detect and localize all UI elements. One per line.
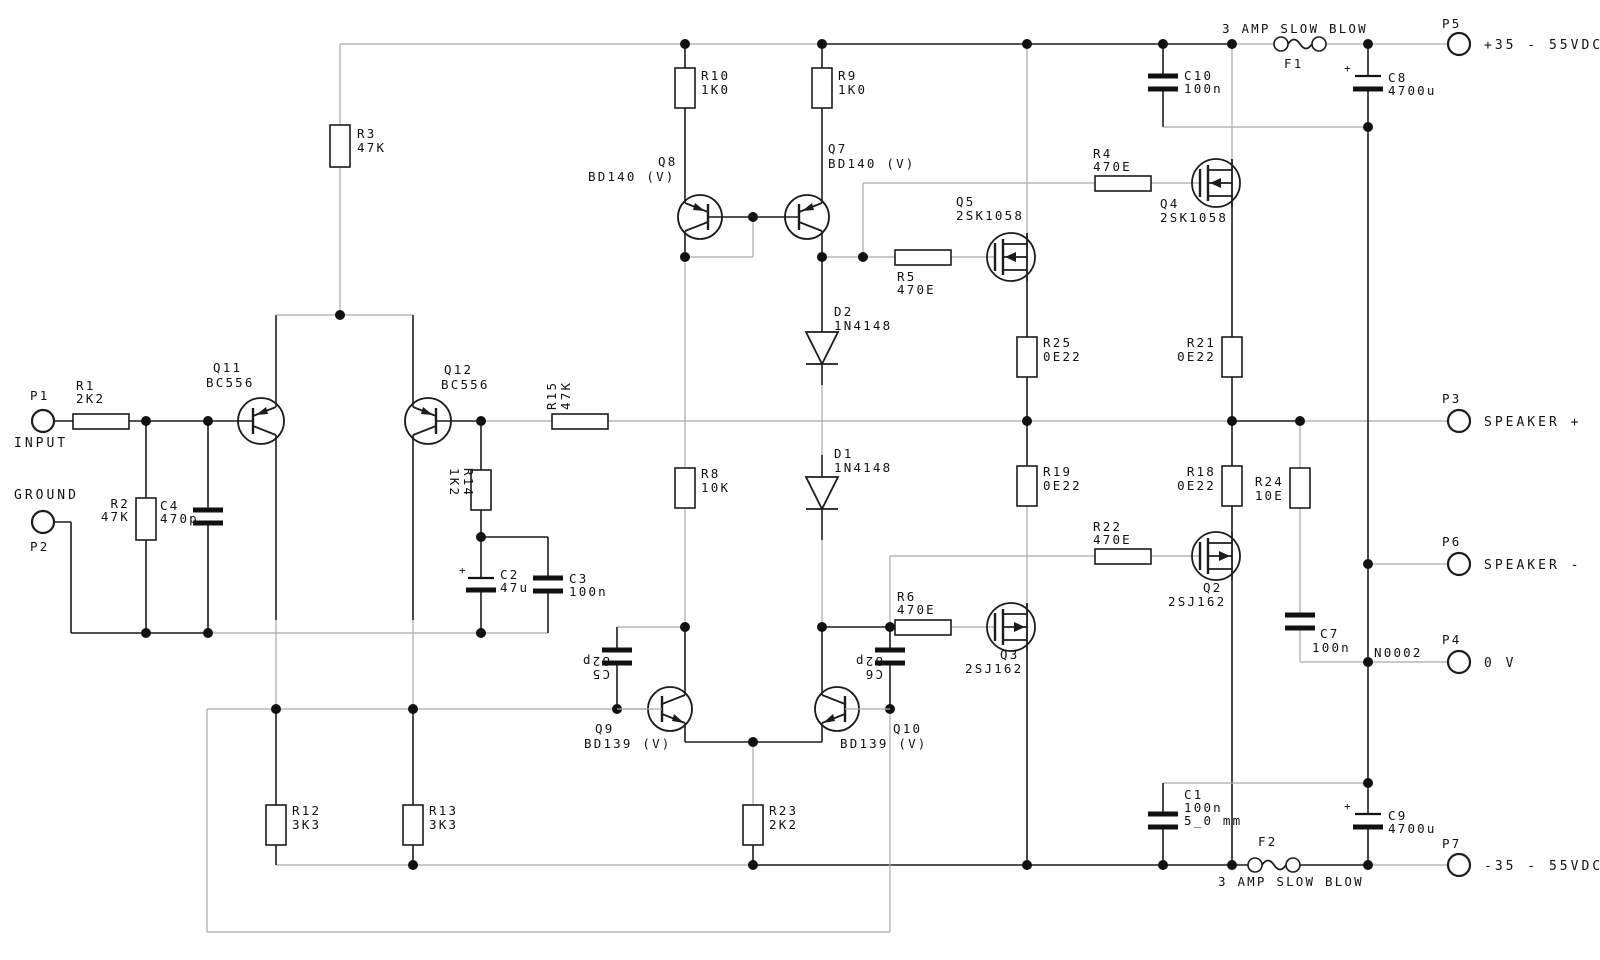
symbol-shape	[136, 498, 156, 540]
ref-label: Q9	[595, 721, 614, 736]
ref-label: Q8	[658, 154, 677, 169]
capacitor-C8: + C8 4700u	[1344, 62, 1437, 98]
value-label: 47u	[500, 580, 529, 595]
polarity-plus: +	[1344, 800, 1351, 813]
value-label: 470p	[160, 511, 199, 526]
pin-label: INPUT	[14, 436, 68, 451]
pin-label: -35 - 55VDC	[1484, 859, 1600, 874]
junction-dot	[817, 622, 827, 632]
junction-dot	[203, 628, 213, 638]
part-label: BC556	[441, 377, 490, 392]
junction-dot	[1363, 122, 1373, 132]
junction-dot	[1022, 860, 1032, 870]
resistor-R3: R3 47K	[330, 125, 386, 167]
junction-dot	[408, 860, 418, 870]
junction-dot	[1227, 39, 1237, 49]
junction-dot	[817, 252, 827, 262]
resistor-R25: R25 0E22	[1017, 335, 1082, 377]
pin-label: +35 - 55VDC	[1484, 38, 1600, 53]
symbol-arrow	[421, 407, 433, 415]
note-label: 5_0 mm	[1184, 813, 1242, 828]
symbol-shape	[1095, 549, 1151, 564]
symbol-circle	[1448, 410, 1470, 432]
ref-label: Q5	[956, 194, 975, 209]
value-label: 470E	[897, 282, 936, 297]
wire-segment	[799, 222, 822, 231]
resistor-R8: R8 10K	[675, 466, 730, 508]
junction-dot	[748, 737, 758, 747]
junction-dot	[1363, 39, 1373, 49]
symbol-arrow	[802, 203, 814, 211]
net-label-n0002: N0002	[1374, 645, 1423, 660]
part-label: 2SJ162	[1168, 594, 1226, 609]
pin-name: P6	[1442, 534, 1461, 549]
fuse-F2: F2 3 AMP SLOW BLOW	[1218, 834, 1364, 889]
symbol-shape	[266, 805, 286, 845]
symbol-shape	[552, 414, 608, 429]
junction-dot	[141, 628, 151, 638]
ref-label: Q12	[444, 362, 473, 377]
resistor-R9: R9 1K0	[812, 68, 867, 108]
connector-P2: GROUND P2	[14, 488, 79, 554]
symbol-shape	[1222, 466, 1242, 506]
junction-dot	[748, 860, 758, 870]
junction-dot	[476, 628, 486, 638]
pin-label: 0 V	[1484, 656, 1516, 671]
value-label: 470E	[1093, 532, 1132, 547]
resistor-R14: R14 1K2	[447, 468, 491, 510]
ref-label: R14	[461, 468, 476, 497]
part-label: BD139 (V)	[840, 736, 928, 751]
polarity-plus: +	[459, 564, 466, 577]
value-label: 1K0	[838, 82, 867, 97]
junction-dot	[858, 252, 868, 262]
diode-D2: D2 1N4148	[806, 304, 892, 364]
value-label: 1K0	[701, 82, 730, 97]
capacitor-C10: C10 100n	[1148, 68, 1223, 96]
ref-label: R9	[838, 68, 857, 83]
transistor-Q9: Q9 BD139 (V)	[584, 687, 692, 751]
symbol-arrow	[1219, 551, 1230, 561]
junction-dot	[271, 704, 281, 714]
symbol-circle	[1448, 651, 1470, 673]
symbol-shape	[1017, 337, 1037, 377]
pin-label: GROUND	[14, 488, 79, 503]
fuse-rating-label: 3 AMP SLOW BLOW	[1218, 874, 1364, 889]
pin-name: P7	[1442, 836, 1461, 851]
junction-dots	[141, 39, 1373, 870]
pin-name: P3	[1442, 391, 1461, 406]
capacitor-C9: + C9 4700u	[1344, 800, 1437, 836]
symbol-circle	[1274, 37, 1288, 51]
junction-dot	[680, 622, 690, 632]
resistor-R22: R22 470E	[1093, 519, 1151, 564]
transistor-Q3: Q3 2SJ162	[965, 603, 1035, 676]
ref-label: R10	[701, 68, 730, 83]
symbol-arrow	[806, 332, 838, 364]
transistor-Q5: Q5 2SK1058	[956, 194, 1035, 281]
junction-dot	[1363, 559, 1373, 569]
symbol-shape	[330, 125, 350, 167]
symbol-shape	[895, 250, 951, 265]
resistor-R21: R21 0E22	[1177, 335, 1242, 377]
symbol-circle	[1312, 37, 1326, 51]
connector-P3: P3 SPEAKER +	[1442, 391, 1581, 432]
wire-segment	[253, 426, 276, 435]
symbol-circle	[1286, 858, 1300, 872]
capacitor-C3: C3 100n	[533, 571, 608, 599]
value-label: 100n	[569, 584, 608, 599]
wire-segment	[413, 426, 436, 435]
ref-label: R25	[1043, 335, 1072, 350]
resistor-R24: R24 10E	[1255, 468, 1310, 508]
junction-dot	[1158, 39, 1168, 49]
value-label: 10K	[701, 480, 730, 495]
value-label: 4700u	[1388, 821, 1437, 836]
symbol-circle	[1448, 553, 1470, 575]
value-label: 100n	[1184, 81, 1223, 96]
part-label: BD140 (V)	[828, 156, 916, 171]
junction-dot	[1363, 778, 1373, 788]
fuse-ref-label: F2	[1258, 834, 1277, 849]
ref-label: Q4	[1160, 196, 1179, 211]
symbol-shape	[73, 414, 129, 429]
ref-label: R24	[1255, 474, 1284, 489]
ref-label: R3	[357, 126, 376, 141]
connector-P4: P4 0 V	[1442, 632, 1516, 673]
symbol-arrow	[1210, 178, 1221, 188]
symbol-arrow	[823, 714, 835, 723]
symbol-circle	[1448, 854, 1470, 876]
ref-label: R15	[544, 381, 559, 410]
junction-dot	[476, 532, 486, 542]
value-label: 47K	[558, 381, 573, 410]
junction-dot	[1022, 416, 1032, 426]
resistor-R4: R4 470E	[1093, 146, 1151, 191]
part-label: BD139 (V)	[584, 736, 672, 751]
symbol-circle	[1248, 858, 1262, 872]
wire-segment	[662, 695, 685, 704]
resistor-R19: R19 0E22	[1017, 464, 1082, 506]
ref-label: D1	[834, 446, 853, 461]
part-label: 1N4148	[834, 318, 892, 333]
pin-label: SPEAKER +	[1484, 415, 1581, 430]
capacitor-C7: C7 100n	[1285, 615, 1351, 655]
symbol-shape	[1095, 176, 1151, 191]
ref-label: R8	[701, 466, 720, 481]
capacitor-C6: C6 82p	[854, 650, 905, 682]
symbol-shape	[1222, 337, 1242, 377]
value-label: 47K	[357, 140, 386, 155]
value-label: 2K2	[769, 817, 798, 832]
wire-segment	[822, 695, 845, 704]
fuse-ref-label: F1	[1284, 56, 1303, 71]
part-label: 2SJ162	[965, 661, 1023, 676]
junction-dot	[1363, 657, 1373, 667]
symbol-arrow	[1014, 622, 1025, 632]
value-label: 2K2	[76, 391, 105, 406]
junction-dot	[203, 416, 213, 426]
symbol-shape	[1290, 468, 1310, 508]
symbol-shape	[675, 68, 695, 108]
ref-label: R18	[1187, 464, 1216, 479]
resistor-R18: R18 0E22	[1177, 464, 1242, 506]
junction-dot	[1295, 416, 1305, 426]
part-label: BD140 (V)	[588, 169, 676, 184]
value-label: 3K3	[292, 817, 321, 832]
value-label: 3K3	[429, 817, 458, 832]
symbol-circle	[1448, 33, 1470, 55]
transistor-Q12: Q12 BC556	[405, 362, 490, 444]
connector-P1: P1 INPUT	[14, 388, 68, 451]
amplifier-schematic: R1 2K2 R2 47K R3 47K R10 1K0 R9 1K0 R15 …	[0, 0, 1600, 960]
symbol-shape	[1262, 861, 1286, 870]
ref-label: R23	[769, 803, 798, 818]
value-label: 0E22	[1177, 349, 1216, 364]
part-label: 1N4148	[834, 460, 892, 475]
symbol-arrow	[672, 714, 684, 723]
value-label: 47K	[101, 509, 130, 524]
symbol-arrow	[1005, 252, 1016, 262]
value-label: 4700u	[1388, 83, 1437, 98]
value-label: 470E	[897, 602, 936, 617]
symbol-shape	[812, 68, 832, 108]
value-label: 1K2	[447, 468, 462, 497]
ref-label: Q10	[893, 721, 922, 736]
part-label: 2SK1058	[956, 208, 1024, 223]
ref-label: Q3	[1000, 647, 1019, 662]
value-label: 10E	[1255, 488, 1284, 503]
pin-name: P5	[1442, 16, 1461, 31]
resistor-R15: R15 47K	[544, 381, 608, 429]
part-label: BC556	[206, 375, 255, 390]
capacitor-C5: C5 82p	[581, 650, 632, 682]
junction-dot	[885, 622, 895, 632]
resistor-R23: R23 2K2	[743, 803, 798, 845]
symbol-shape	[743, 805, 763, 845]
value-label: 0E22	[1177, 478, 1216, 493]
capacitor-C2: + C2 47u	[459, 564, 529, 595]
symbol-shape	[1288, 40, 1312, 49]
value-label: 470E	[1093, 159, 1132, 174]
pin-name: P1	[30, 388, 49, 403]
junction-dot	[817, 39, 827, 49]
ref-label: R19	[1043, 464, 1072, 479]
junction-dot	[1363, 860, 1373, 870]
ref-label: Q7	[828, 141, 847, 156]
symbol-arrow	[693, 203, 705, 211]
transistor-Q2: Q2 2SJ162	[1168, 532, 1240, 609]
value-label: 82p	[854, 654, 883, 669]
value-label: 0E22	[1043, 349, 1082, 364]
symbol-circle	[32, 511, 54, 533]
transistor-Q11: Q11 BC556	[206, 360, 284, 444]
wire-segment	[685, 222, 708, 231]
value-label: 0E22	[1043, 478, 1082, 493]
value-label: 82p	[581, 654, 610, 669]
pin-name: P4	[1442, 632, 1461, 647]
connector-P6: P6 SPEAKER -	[1442, 534, 1581, 575]
transistor-Q8: Q8 BD140 (V)	[588, 154, 753, 239]
fuse-rating-label: 3 AMP SLOW BLOW	[1222, 21, 1368, 36]
symbol-circle	[32, 410, 54, 432]
junction-dot	[680, 252, 690, 262]
value-label: 100n	[1312, 640, 1351, 655]
junction-dot	[1022, 39, 1032, 49]
resistor-R12: R12 3K3	[266, 803, 321, 845]
capacitor-C4: C4 470p	[160, 498, 223, 526]
connector-P7: P7 -35 - 55VDC	[1442, 836, 1600, 876]
symbol-shape	[403, 805, 423, 845]
symbol-shape	[1017, 466, 1037, 506]
junction-dot	[1227, 416, 1237, 426]
pin-name: P2	[30, 539, 49, 554]
resistor-R10: R10 1K0	[675, 68, 730, 108]
ref-label: Q2	[1203, 580, 1222, 595]
capacitor-C1: C1 100n 5_0 mm	[1148, 787, 1242, 828]
symbol-shape	[675, 468, 695, 508]
diode-D1: D1 1N4148	[806, 446, 892, 509]
junction-dot	[335, 310, 345, 320]
ref-label: R21	[1187, 335, 1216, 350]
symbol-arrow	[806, 477, 838, 509]
resistor-R5: R5 470E	[895, 250, 951, 297]
ref-label: C7	[1320, 626, 1339, 641]
symbol-arrow	[256, 407, 268, 415]
junction-dot	[1227, 860, 1237, 870]
transistor-Q4: Q4 2SK1058	[1160, 159, 1240, 225]
resistor-R1: R1 2K2	[73, 378, 129, 429]
connector-P5: P5 +35 - 55VDC	[1442, 16, 1600, 55]
transistor-Q7: Q7 BD140 (V)	[753, 141, 916, 239]
junction-dot	[1158, 860, 1168, 870]
ref-label: R12	[292, 803, 321, 818]
polarity-plus: +	[1344, 62, 1351, 75]
part-label: 2SK1058	[1160, 210, 1228, 225]
ref-label: D2	[834, 304, 853, 319]
transistor-Q10: Q10 BD139 (V)	[815, 687, 928, 751]
resistor-R2: R2 47K	[101, 496, 156, 540]
symbol-shape	[895, 620, 951, 635]
ref-label: R13	[429, 803, 458, 818]
junction-dot	[141, 416, 151, 426]
schematic-canvas: R1 2K2 R2 47K R3 47K R10 1K0 R9 1K0 R15 …	[0, 0, 1600, 960]
pin-label: SPEAKER -	[1484, 558, 1581, 573]
junction-dot	[408, 704, 418, 714]
resistor-R13: R13 3K3	[403, 803, 458, 845]
resistor-R6: R6 470E	[895, 589, 951, 635]
junction-dot	[680, 39, 690, 49]
ref-label: Q11	[213, 360, 242, 375]
